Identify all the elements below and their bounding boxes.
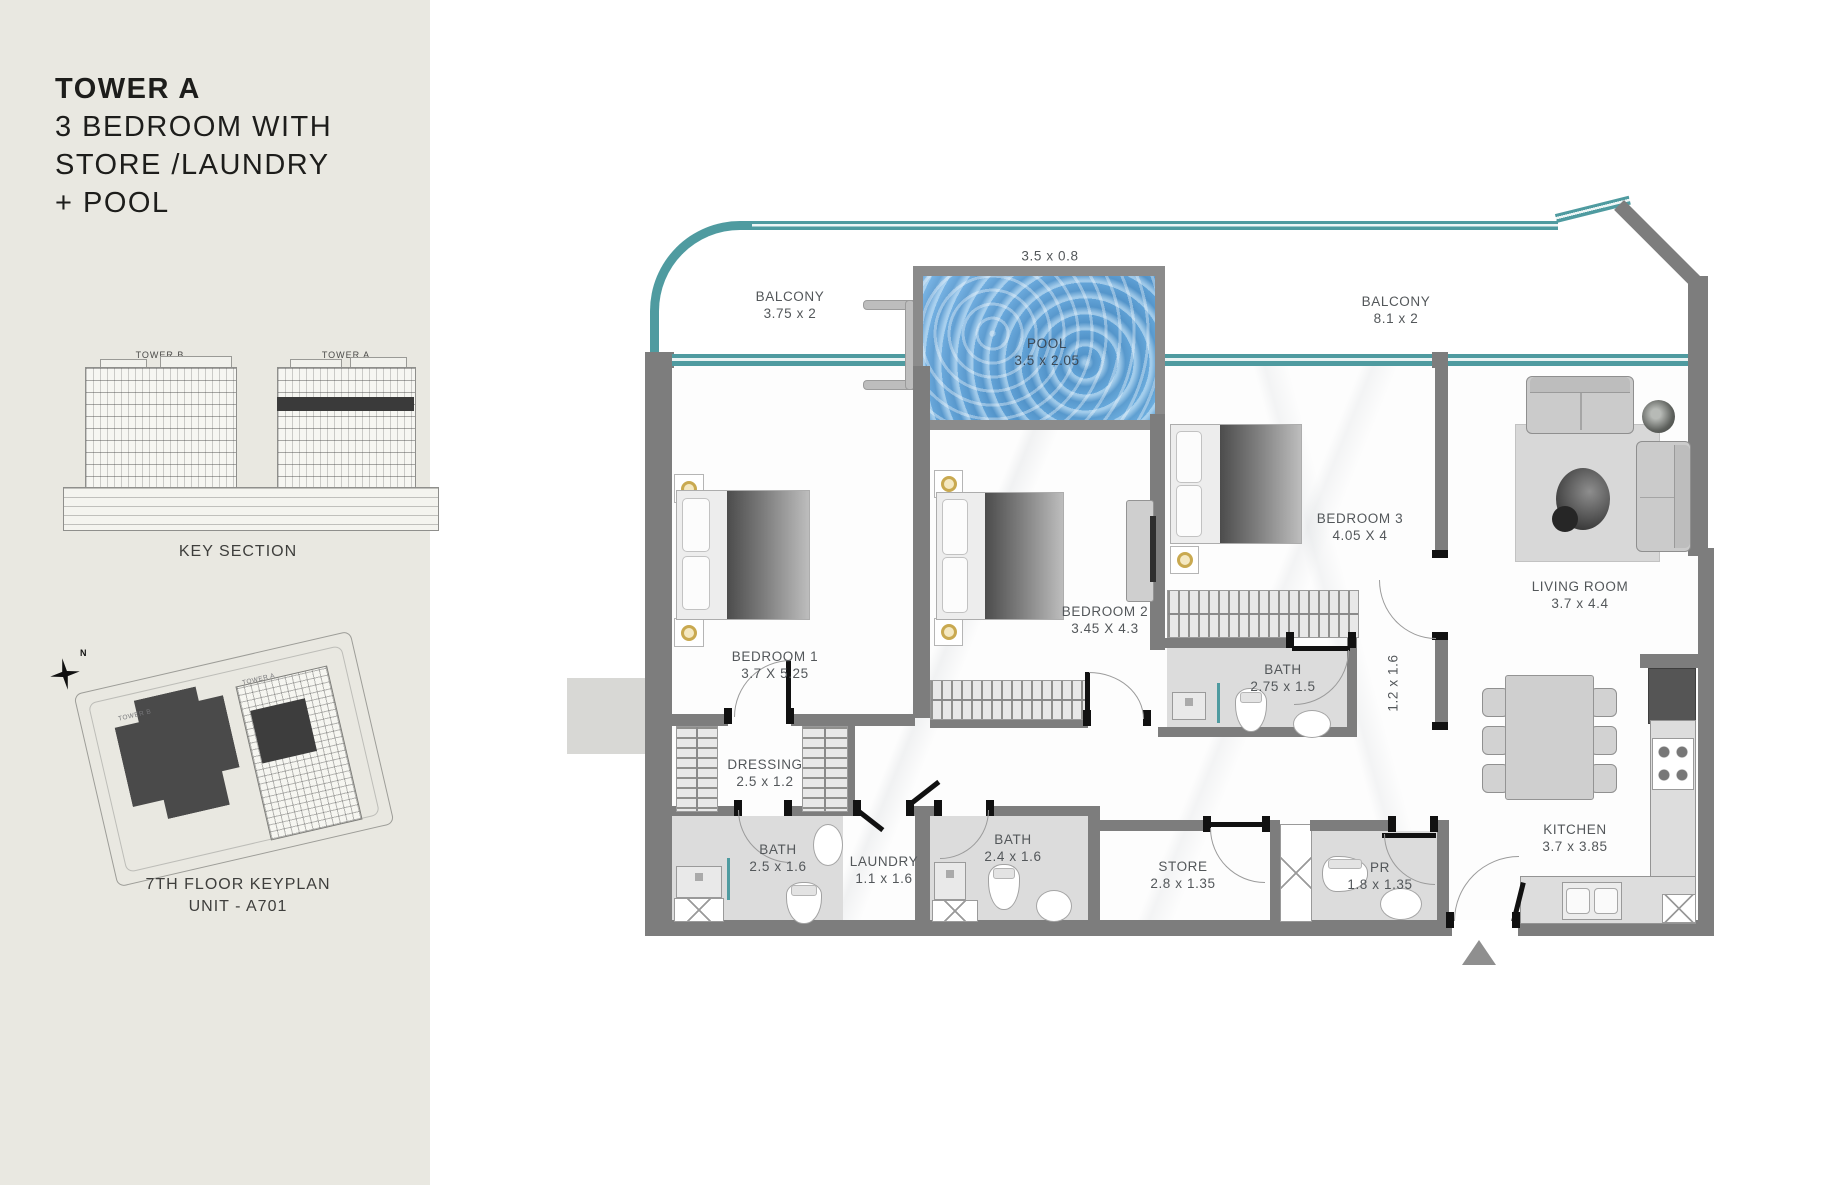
room-label-bedroom1: BEDROOM 1 3.7 X 5.25 [732, 648, 818, 682]
door-jamb-tick [724, 708, 732, 724]
bath1-basin [813, 824, 843, 866]
wardrobe-dressing-right [802, 726, 848, 812]
dining-table [1505, 675, 1594, 800]
bed-blanket [1220, 425, 1301, 543]
wall-bedroom1-bedroom2 [913, 366, 930, 718]
dining-chair [1590, 688, 1617, 717]
bed-pillow [1176, 431, 1202, 483]
entrance-arrow-icon [1462, 940, 1496, 965]
door-jamb-tick [1446, 912, 1454, 928]
bath1-vanity-sink [676, 866, 722, 898]
door-jamb-tick [1143, 710, 1151, 726]
dining-chair [1590, 764, 1617, 793]
title-line-2: 3 BEDROOM WITH [55, 108, 332, 146]
bed-bedroom3 [1170, 424, 1302, 544]
bed-pillow [1176, 485, 1202, 537]
door-jamb-tick [1432, 722, 1448, 730]
keyplan-caption-line1: 7TH FLOOR KEYPLAN [145, 876, 330, 894]
room-label-kitchen: KITCHEN 3.7 x 3.85 [1542, 821, 1607, 855]
page-title: TOWER A 3 BEDROOM WITH STORE /LAUNDRY + … [55, 70, 332, 222]
podium-elevation [63, 487, 439, 531]
nightstand-lamp [1170, 546, 1199, 574]
title-line-3: STORE /LAUNDRY [55, 146, 332, 184]
wall-store-shaft [1270, 820, 1280, 926]
tower-a-elevation [277, 367, 416, 489]
plant [1642, 400, 1675, 433]
bath3-basin [1293, 710, 1331, 738]
wall-left-protrusion [567, 678, 645, 754]
bath1-shower-glass [727, 858, 730, 900]
coffee-table-knob [1552, 506, 1578, 532]
keyplan-caption-line2: UNIT - A701 [189, 898, 288, 916]
room-label-laundry: LAUNDRY 1.1 x 1.6 [850, 853, 918, 887]
room-label-dressing: DRESSING 2.5 x 1.2 [727, 756, 802, 790]
door-jamb-tick [1432, 550, 1448, 558]
door-jamb-tick [1430, 816, 1438, 832]
room-label-bath2: BATH 2.4 x 1.6 [984, 831, 1041, 865]
wall-left [645, 352, 672, 935]
bed-bedroom2 [936, 492, 1064, 620]
room-label-bedroom2: BEDROOM 2 3.45 X 4.3 [1062, 603, 1148, 637]
tower-b-elevation [85, 367, 237, 489]
balcony-railing-top [752, 221, 1558, 230]
room-label-store: STORE 2.8 x 1.35 [1150, 858, 1215, 892]
balcony-railing-curve [650, 221, 759, 338]
wall-store-north [1088, 820, 1210, 831]
room-label-bath1: BATH 2.5 x 1.6 [749, 841, 806, 875]
wall-right-upper [1688, 276, 1708, 556]
dining-chair [1590, 726, 1617, 755]
nightstand-lamp [934, 618, 963, 646]
kitchen-shaft [1662, 894, 1696, 923]
tower-a-7th-floor-highlight [277, 397, 414, 411]
compass-north-icon [47, 656, 82, 693]
bed-blanket [985, 493, 1063, 619]
bath1-shaft [674, 898, 724, 922]
stove [1652, 738, 1694, 790]
keyplan-unit-a701-highlight [250, 698, 317, 763]
room-label-balcony-right: BALCONY 8.1 x 2 [1362, 293, 1431, 327]
title-line-1: TOWER A [55, 70, 332, 108]
bed-blanket [727, 491, 809, 619]
wardrobe-dressing-left [676, 726, 718, 812]
door-jamb-tick [1388, 816, 1396, 832]
window-bedroom1 [672, 354, 913, 366]
wall-bedroom1-south [791, 714, 915, 726]
bath3-shower-glass [1217, 683, 1220, 723]
room-label-bedroom3: BEDROOM 3 4.05 X 4 [1317, 510, 1403, 544]
window-bedroom3 [1163, 354, 1435, 366]
room-label-pr: PR 1.8 x 1.35 [1347, 859, 1412, 893]
wall-right-lower [1698, 548, 1714, 936]
room-label-pool: POOL 3.5 x 2.05 [1014, 335, 1079, 369]
bed-pillow [942, 499, 968, 555]
wall-bottom-west [645, 920, 1452, 936]
wall-corridor-east [1435, 640, 1448, 730]
dimension-pool-deck: 3.5 x 0.8 [1021, 248, 1078, 265]
bath2-basin [1036, 890, 1072, 922]
wardrobe-bedroom2 [930, 680, 1090, 720]
tv-screen [1150, 516, 1156, 582]
bath2-vanity-sink [934, 862, 966, 900]
wall-bedroom1-south [672, 714, 728, 726]
sofa-main [1526, 376, 1634, 434]
wall-bath2-north [992, 806, 1088, 816]
bed-pillow [682, 498, 710, 552]
bed-bedroom1 [676, 490, 810, 620]
room-label-bath3: BATH 2.75 x 1.5 [1250, 661, 1315, 695]
room-label-living-room: LIVING ROOM 3.7 x 4.4 [1532, 578, 1629, 612]
nightstand-lamp [674, 618, 704, 647]
fridge [1648, 668, 1696, 724]
wall-bedroom3-living [1435, 366, 1448, 558]
bed-pillow [942, 557, 968, 613]
wall-bath3-north [1158, 638, 1292, 648]
wall-pr-north [1310, 820, 1396, 831]
door-leaf-store [1208, 822, 1266, 827]
title-line-4: + POOL [55, 184, 332, 222]
kitchen-sink [1562, 882, 1622, 920]
wardrobe-bedroom3 [1167, 590, 1359, 638]
dimension-corridor: 1.2 x 1.6 [1385, 654, 1402, 711]
bath2-shaft [932, 900, 978, 922]
bed-pillow [682, 556, 710, 610]
bath3-vanity-sink [1172, 692, 1206, 720]
compass-north-label: N [80, 648, 87, 658]
wall-foyer-west [1437, 820, 1449, 920]
service-shaft [1280, 824, 1312, 922]
window-living-room [1448, 354, 1688, 366]
brochure-page: { "sidebar": { "title": { "line1": "TOWE… [0, 0, 1836, 1185]
room-label-balcony-left: BALCONY 3.75 x 2 [756, 288, 825, 322]
key-section-caption: KEY SECTION [179, 543, 297, 561]
sidebar: TOWER A 3 BEDROOM WITH STORE /LAUNDRY + … [0, 0, 430, 1185]
wall-kitchen-north [1640, 654, 1710, 668]
sofa-side [1636, 441, 1691, 552]
